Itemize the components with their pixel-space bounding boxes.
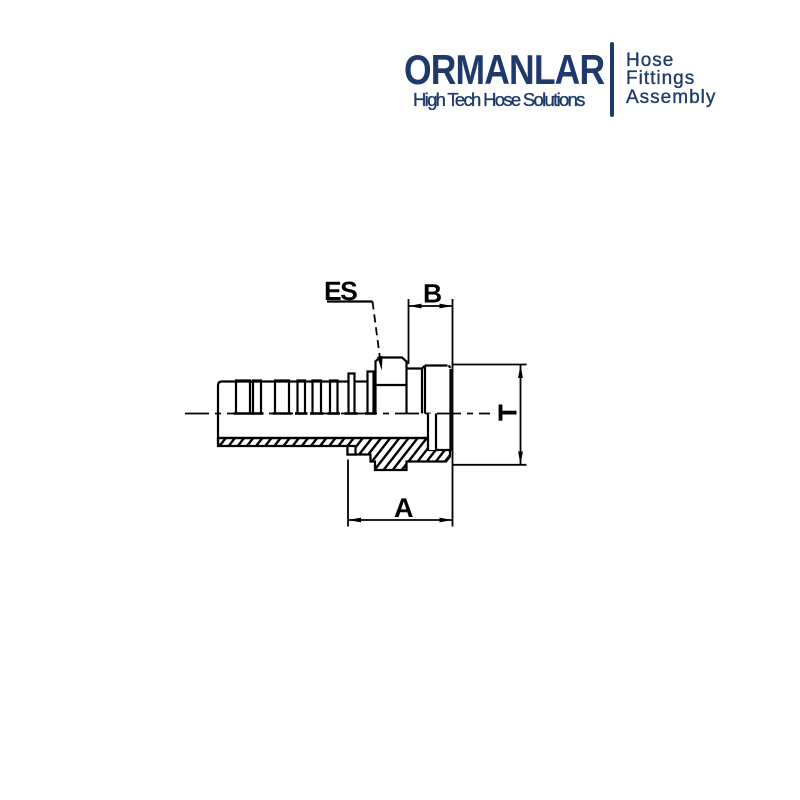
svg-text:ES: ES [324,276,357,306]
svg-text:B: B [423,279,442,309]
svg-text:A: A [394,493,414,523]
